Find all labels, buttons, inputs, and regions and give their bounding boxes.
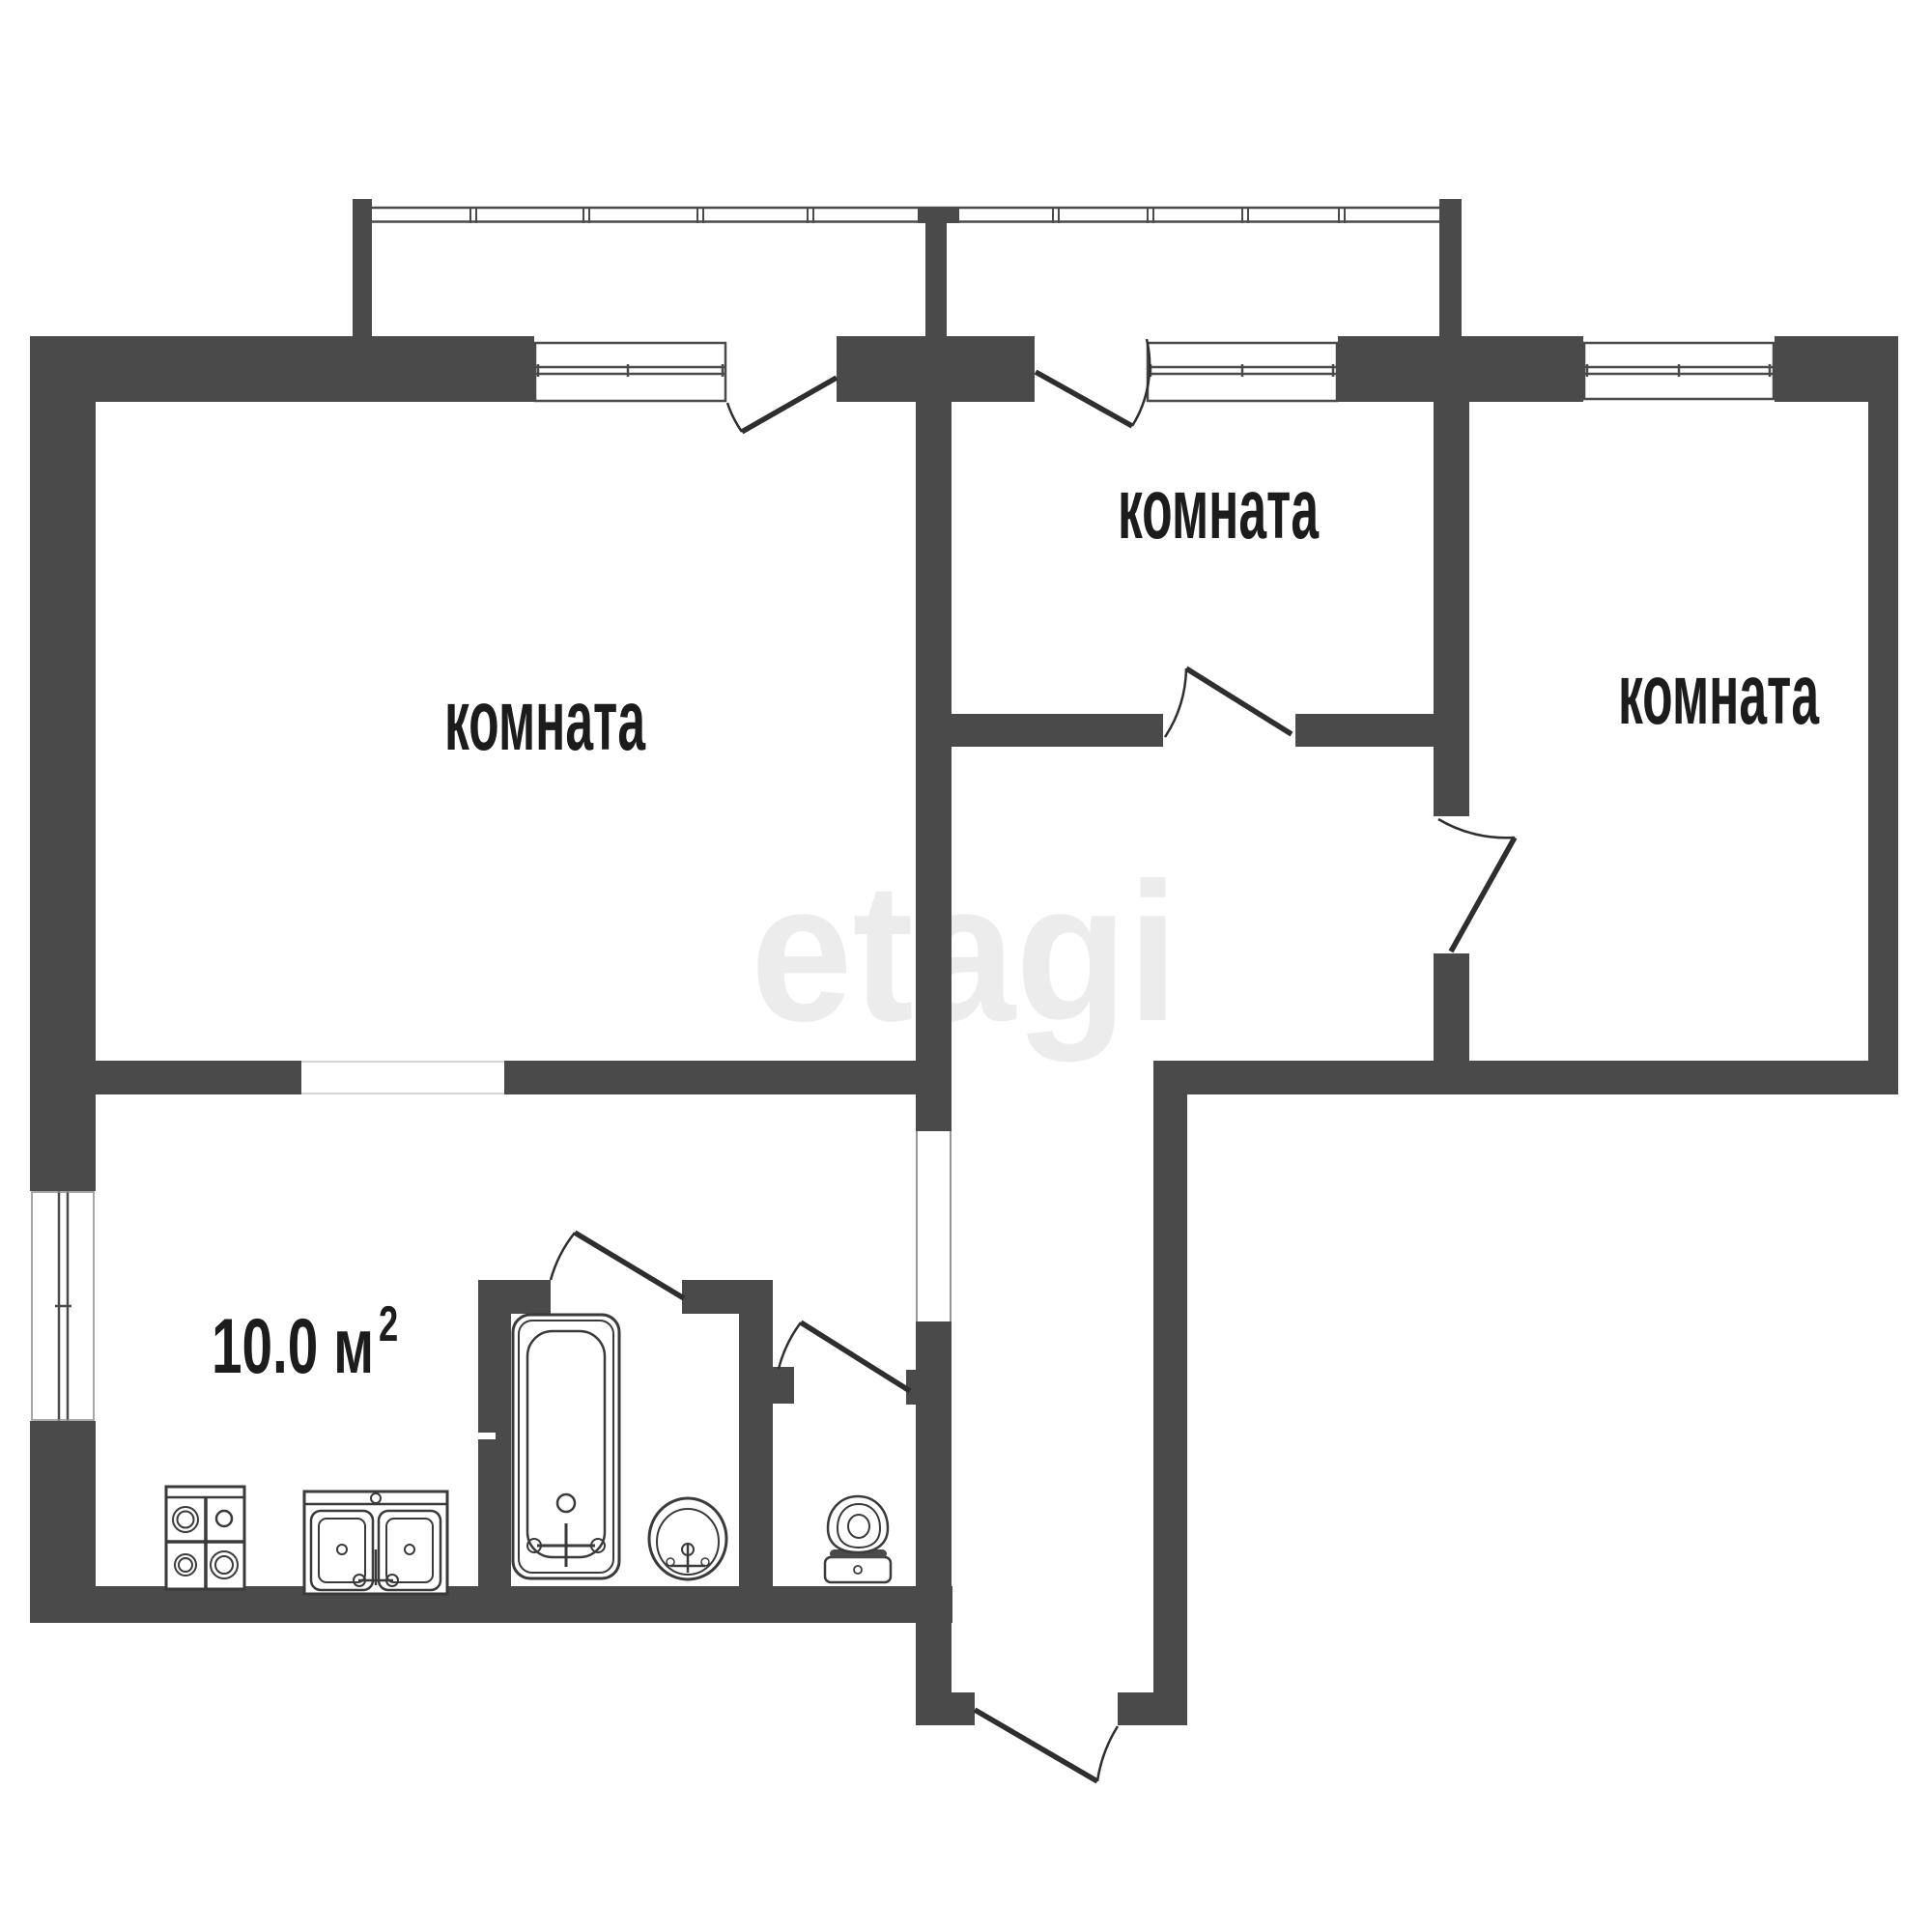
svg-text:2: 2 [379, 1294, 398, 1351]
svg-text:etagi: etagi [751, 842, 1179, 1063]
svg-text:комната: комната [444, 672, 645, 768]
svg-text:комната: комната [1118, 461, 1319, 556]
svg-text:комната: комната [1618, 646, 1819, 742]
svg-text:10.0 м: 10.0 м [212, 1302, 374, 1389]
